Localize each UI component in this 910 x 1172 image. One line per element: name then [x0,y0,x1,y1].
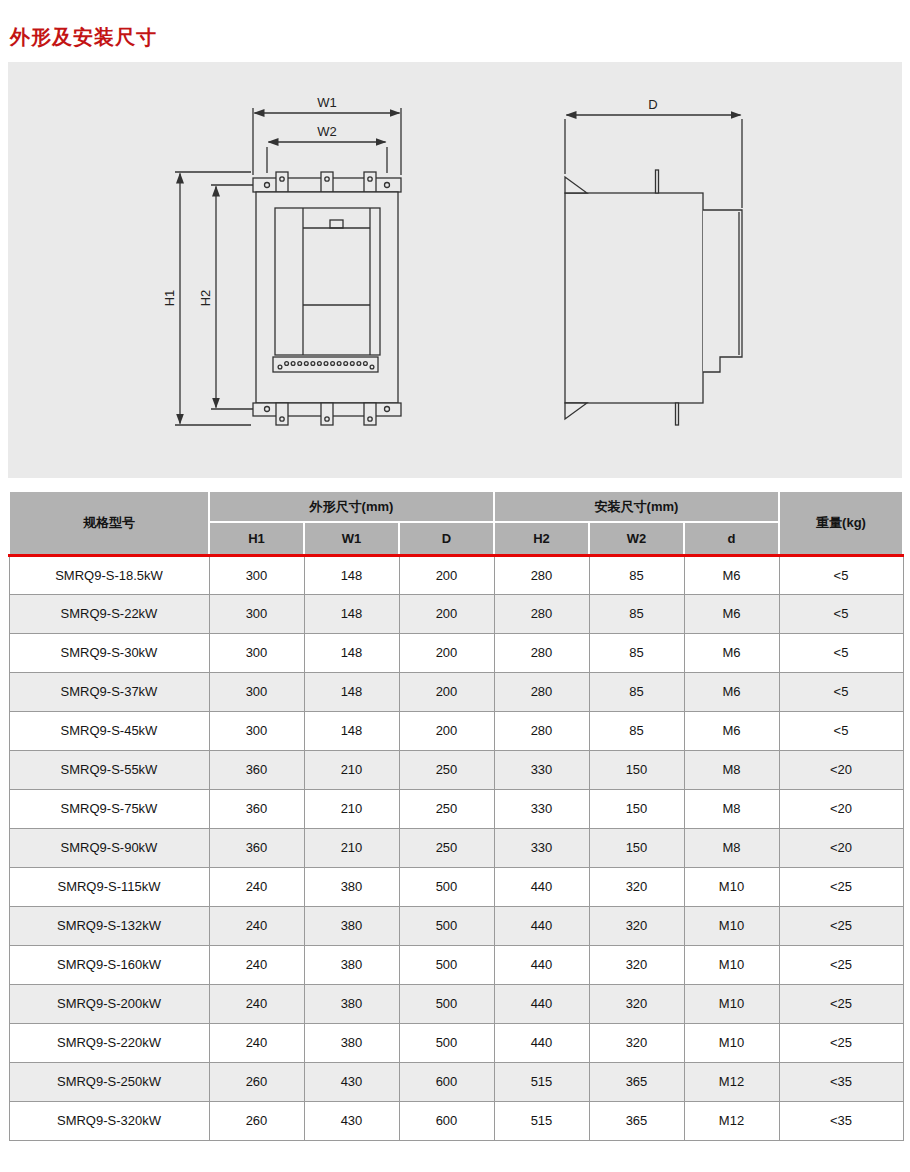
table-row: SMRQ9-S-90kW360210250330150M8<20 [9,828,903,867]
value-cell: M12 [684,1062,779,1101]
value-cell: 380 [304,906,399,945]
value-cell: M6 [684,555,779,594]
value-cell: 85 [589,711,684,750]
value-cell: 250 [399,750,494,789]
table-row: SMRQ9-S-115kW240380500440320M10<25 [9,867,903,906]
value-cell: 300 [209,555,304,594]
table-row: SMRQ9-S-320kW260430600515365M12<35 [9,1101,903,1140]
dim-label-w2: W2 [317,124,337,139]
header-w2: W2 [589,522,684,555]
value-cell: 148 [304,594,399,633]
value-cell: <5 [779,633,903,672]
value-cell: 430 [304,1101,399,1140]
value-cell: <5 [779,672,903,711]
value-cell: 240 [209,906,304,945]
value-cell: 280 [494,633,589,672]
value-cell: <25 [779,906,903,945]
header-model: 规格型号 [9,491,209,555]
value-cell: 210 [304,750,399,789]
value-cell: <5 [779,555,903,594]
dim-label-d: D [648,97,657,112]
table-row: SMRQ9-S-160kW240380500440320M10<25 [9,945,903,984]
value-cell: 360 [209,789,304,828]
value-cell: 250 [399,789,494,828]
value-cell: 320 [589,906,684,945]
value-cell: M10 [684,1023,779,1062]
model-cell: SMRQ9-S-200kW [9,984,209,1023]
value-cell: 320 [589,1023,684,1062]
value-cell: 300 [209,672,304,711]
value-cell: M10 [684,867,779,906]
dim-label-h1: H1 [162,290,177,307]
value-cell: 515 [494,1062,589,1101]
value-cell: M8 [684,789,779,828]
table-body: SMRQ9-S-18.5kW30014820028085M6<5SMRQ9-S-… [9,555,903,1140]
model-cell: SMRQ9-S-115kW [9,867,209,906]
value-cell: 360 [209,750,304,789]
header-h2: H2 [494,522,589,555]
value-cell: 260 [209,1062,304,1101]
value-cell: 440 [494,984,589,1023]
model-cell: SMRQ9-S-30kW [9,633,209,672]
table-row: SMRQ9-S-18.5kW30014820028085M6<5 [9,555,903,594]
dimension-drawing-panel: W1 W2 H1 H2 D [8,62,902,478]
value-cell: 240 [209,867,304,906]
side-rear-protrusion [703,210,742,372]
model-cell: SMRQ9-S-75kW [9,789,209,828]
value-cell: 380 [304,984,399,1023]
value-cell: 380 [304,945,399,984]
side-body [565,193,703,403]
value-cell: 260 [209,1101,304,1140]
model-cell: SMRQ9-S-250kW [9,1062,209,1101]
dim-label-w1: W1 [317,95,337,110]
table-row: SMRQ9-S-37kW30014820028085M6<5 [9,672,903,711]
table-row: SMRQ9-S-132kW240380500440320M10<25 [9,906,903,945]
table-row: SMRQ9-S-55kW360210250330150M8<20 [9,750,903,789]
table-row: SMRQ9-S-75kW360210250330150M8<20 [9,789,903,828]
value-cell: 320 [589,945,684,984]
value-cell: 280 [494,555,589,594]
value-cell: M6 [684,633,779,672]
side-view-drawing [565,115,742,425]
value-cell: <5 [779,594,903,633]
value-cell: 200 [399,633,494,672]
value-cell: 148 [304,633,399,672]
value-cell: M8 [684,828,779,867]
model-cell: SMRQ9-S-160kW [9,945,209,984]
model-cell: SMRQ9-S-22kW [9,594,209,633]
value-cell: 380 [304,1023,399,1062]
value-cell: 240 [209,984,304,1023]
value-cell: M6 [684,711,779,750]
value-cell: 365 [589,1101,684,1140]
value-cell: <20 [779,750,903,789]
value-cell: 500 [399,906,494,945]
header-d-mount: d [684,522,779,555]
value-cell: 600 [399,1062,494,1101]
table-row: SMRQ9-S-200kW240380500440320M10<25 [9,984,903,1023]
value-cell: M6 [684,594,779,633]
table-row: SMRQ9-S-30kW30014820028085M6<5 [9,633,903,672]
value-cell: <5 [779,711,903,750]
value-cell: 200 [399,555,494,594]
value-cell: 430 [304,1062,399,1101]
value-cell: 600 [399,1101,494,1140]
header-w1: W1 [304,522,399,555]
value-cell: 440 [494,945,589,984]
value-cell: 330 [494,789,589,828]
model-cell: SMRQ9-S-45kW [9,711,209,750]
value-cell: M6 [684,672,779,711]
value-cell: 300 [209,711,304,750]
value-cell: <25 [779,945,903,984]
value-cell: 280 [494,672,589,711]
model-cell: SMRQ9-S-18.5kW [9,555,209,594]
header-outline-group: 外形尺寸(mm) [209,491,494,522]
value-cell: 440 [494,906,589,945]
value-cell: 365 [589,1062,684,1101]
value-cell: 210 [304,828,399,867]
table-row: SMRQ9-S-45kW30014820028085M6<5 [9,711,903,750]
value-cell: 500 [399,867,494,906]
value-cell: 500 [399,984,494,1023]
value-cell: 440 [494,867,589,906]
dim-label-h2: H2 [198,290,213,307]
value-cell: 85 [589,672,684,711]
table-row: SMRQ9-S-220kW240380500440320M10<25 [9,1023,903,1062]
value-cell: 280 [494,594,589,633]
value-cell: 148 [304,555,399,594]
value-cell: 240 [209,1023,304,1062]
value-cell: 85 [589,594,684,633]
header-weight: 重量(kg) [779,491,903,555]
value-cell: M8 [684,750,779,789]
value-cell: <25 [779,984,903,1023]
value-cell: <20 [779,789,903,828]
value-cell: 150 [589,750,684,789]
header-mount-group: 安装尺寸(mm) [494,491,779,522]
dimension-drawing: W1 W2 H1 H2 D [8,62,902,478]
side-top-bracket [565,177,587,193]
model-cell: SMRQ9-S-132kW [9,906,209,945]
value-cell: 440 [494,1023,589,1062]
dimension-h1 [175,172,251,425]
value-cell: <35 [779,1101,903,1140]
value-cell: 360 [209,828,304,867]
value-cell: 150 [589,789,684,828]
model-cell: SMRQ9-S-55kW [9,750,209,789]
value-cell: 515 [494,1101,589,1140]
spec-table-header: 规格型号 外形尺寸(mm) 安装尺寸(mm) 重量(kg) H1 W1 D H2… [9,491,903,555]
value-cell: 85 [589,555,684,594]
value-cell: M10 [684,984,779,1023]
model-cell: SMRQ9-S-320kW [9,1101,209,1140]
value-cell: 500 [399,945,494,984]
value-cell: 200 [399,672,494,711]
value-cell: 320 [589,867,684,906]
value-cell: 300 [209,633,304,672]
dimension-w2 [267,142,387,173]
table-row: SMRQ9-S-22kW30014820028085M6<5 [9,594,903,633]
value-cell: 380 [304,867,399,906]
value-cell: 148 [304,672,399,711]
value-cell: M10 [684,906,779,945]
model-cell: SMRQ9-S-90kW [9,828,209,867]
value-cell: 150 [589,828,684,867]
value-cell: 200 [399,711,494,750]
value-cell: 330 [494,828,589,867]
value-cell: M10 [684,945,779,984]
value-cell: <35 [779,1062,903,1101]
value-cell: 85 [589,633,684,672]
value-cell: 500 [399,1023,494,1062]
spec-table: 规格型号 外形尺寸(mm) 安装尺寸(mm) 重量(kg) H1 W1 D H2… [8,490,904,1141]
model-cell: SMRQ9-S-220kW [9,1023,209,1062]
value-cell: 320 [589,984,684,1023]
value-cell: 240 [209,945,304,984]
value-cell: 300 [209,594,304,633]
header-h1: H1 [209,522,304,555]
front-view-drawing [175,108,401,425]
value-cell: 330 [494,750,589,789]
value-cell: <25 [779,867,903,906]
value-cell: 210 [304,789,399,828]
table-row: SMRQ9-S-250kW260430600515365M12<35 [9,1062,903,1101]
page-title: 外形及安装尺寸 [10,24,157,51]
value-cell: <20 [779,828,903,867]
value-cell: 148 [304,711,399,750]
value-cell: 280 [494,711,589,750]
value-cell: <25 [779,1023,903,1062]
header-d-outline: D [399,522,494,555]
model-cell: SMRQ9-S-37kW [9,672,209,711]
side-bottom-bracket [565,403,587,419]
value-cell: 250 [399,828,494,867]
value-cell: 200 [399,594,494,633]
value-cell: M12 [684,1101,779,1140]
